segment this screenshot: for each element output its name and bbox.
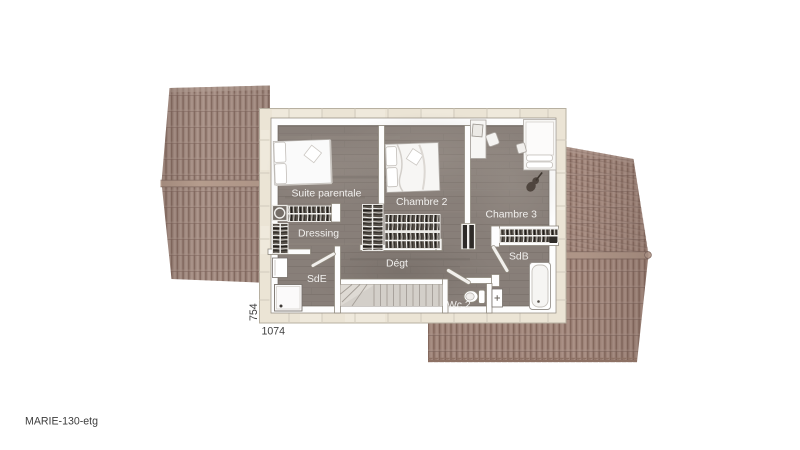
svg-text:1074: 1074 <box>262 326 286 338</box>
svg-text:Chambre 3: Chambre 3 <box>486 210 538 221</box>
svg-text:754: 754 <box>248 303 260 321</box>
svg-text:MARIE-130-etg: MARIE-130-etg <box>25 416 98 428</box>
svg-text:SdE: SdE <box>307 274 327 285</box>
svg-text:SdB: SdB <box>509 252 529 263</box>
svg-text:Dégt: Dégt <box>386 259 408 270</box>
svg-text:Chambre 2: Chambre 2 <box>396 197 448 208</box>
svg-text:Wc 2: Wc 2 <box>447 300 471 311</box>
svg-text:Dressing: Dressing <box>298 229 339 240</box>
svg-text:Suite parentale: Suite parentale <box>292 189 362 200</box>
